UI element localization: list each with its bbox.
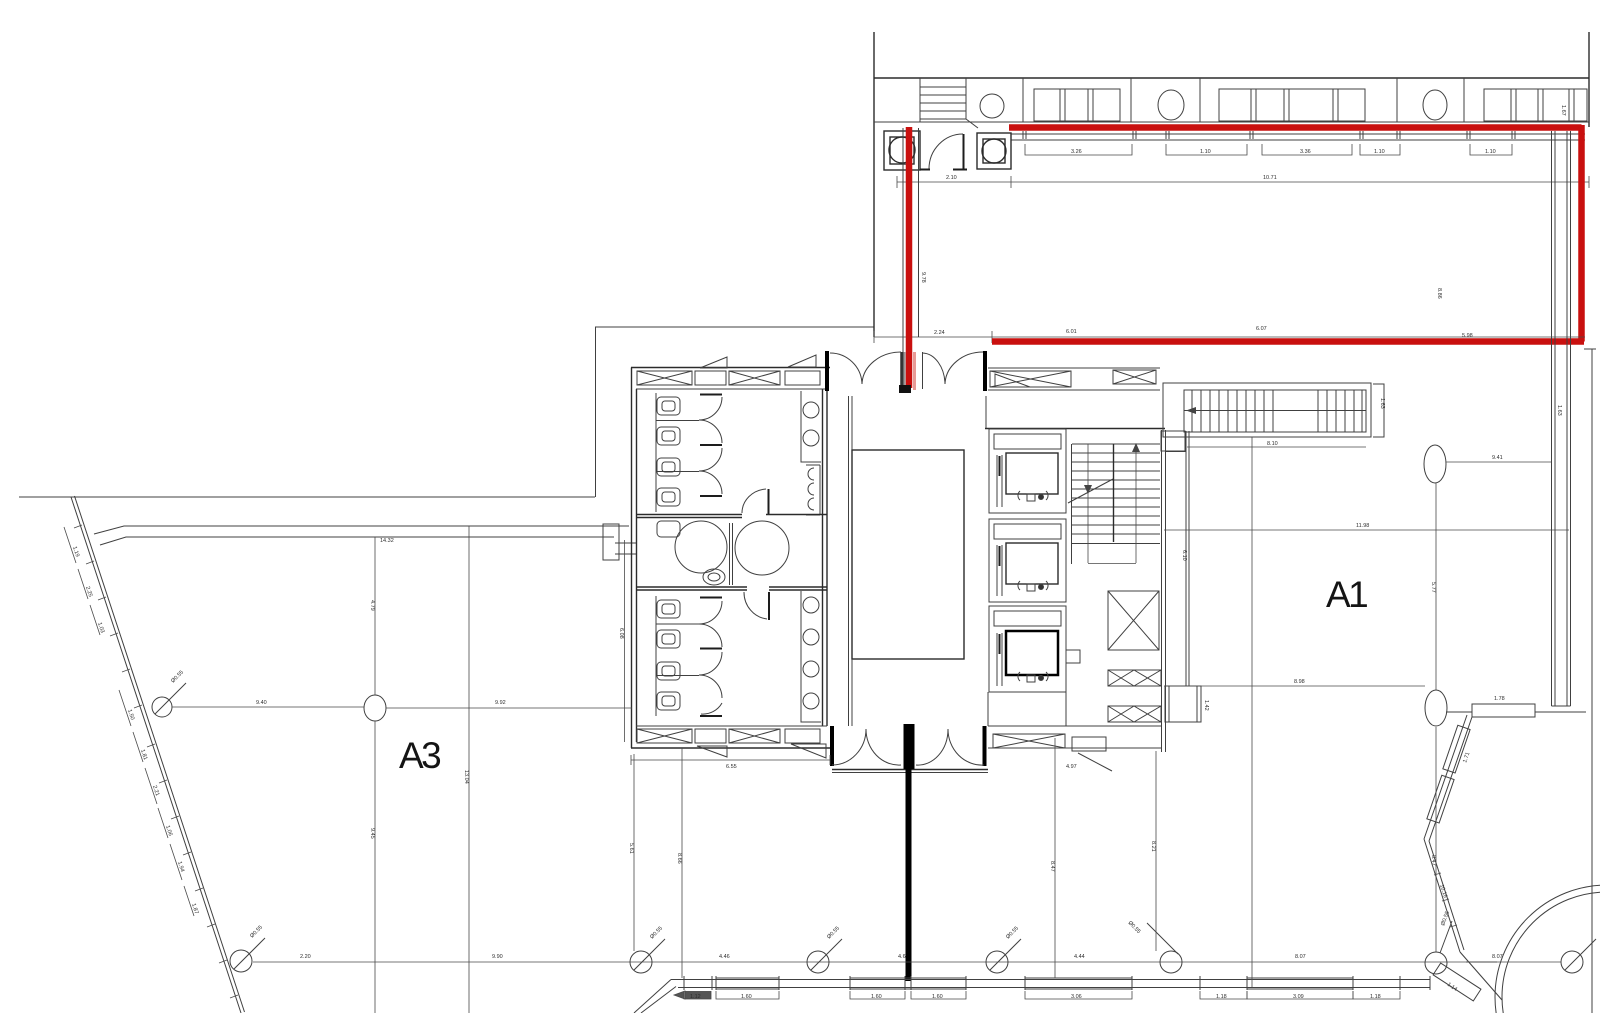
svg-text:3.26: 3.26 (1071, 149, 1082, 155)
svg-text:1.42: 1.42 (1203, 700, 1209, 711)
svg-text:1.10: 1.10 (1485, 149, 1496, 155)
svg-text:3.36: 3.36 (1300, 149, 1311, 155)
svg-text:1.78: 1.78 (1494, 696, 1505, 702)
svg-text:10.71: 10.71 (1263, 175, 1277, 181)
svg-text:1.67: 1.67 (1560, 105, 1566, 116)
svg-text:8.66: 8.66 (676, 853, 682, 864)
svg-text:1.18: 1.18 (1370, 994, 1381, 1000)
svg-text:2.20: 2.20 (300, 954, 311, 960)
svg-text:1.10: 1.10 (1374, 149, 1385, 155)
svg-text:4.44: 4.44 (1074, 954, 1085, 960)
svg-text:14.32: 14.32 (380, 538, 394, 544)
svg-text:9.78: 9.78 (920, 272, 926, 283)
svg-text:9.92: 9.92 (495, 700, 506, 706)
svg-text:6.08: 6.08 (618, 628, 624, 639)
svg-text:13.04: 13.04 (463, 770, 469, 784)
svg-text:6.10: 6.10 (1181, 550, 1187, 561)
svg-text:A3: A3 (399, 735, 440, 776)
svg-text:4.46: 4.46 (719, 954, 730, 960)
svg-text:2.24: 2.24 (934, 330, 945, 336)
svg-text:5.61: 5.61 (628, 843, 634, 854)
svg-text:9.45: 9.45 (369, 828, 375, 839)
svg-text:8.98: 8.98 (1294, 679, 1305, 685)
svg-text:4.97: 4.97 (1066, 764, 1077, 770)
svg-text:8.86: 8.86 (1436, 288, 1442, 299)
svg-text:8.10: 8.10 (1267, 441, 1278, 447)
svg-text:8.47: 8.47 (1049, 861, 1055, 872)
svg-text:1.18: 1.18 (1216, 994, 1227, 1000)
svg-text:9.41: 9.41 (1492, 455, 1503, 461)
svg-text:6.07: 6.07 (1256, 326, 1267, 332)
svg-text:1.60: 1.60 (932, 994, 943, 1000)
svg-text:1.12: 1.12 (690, 994, 701, 1000)
svg-text:1.63: 1.63 (1379, 398, 1385, 409)
svg-text:2.10: 2.10 (946, 175, 957, 181)
svg-text:1.60: 1.60 (871, 994, 882, 1000)
svg-text:1.60: 1.60 (741, 994, 752, 1000)
svg-text:11.98: 11.98 (1356, 523, 1369, 529)
svg-text:3.09: 3.09 (1293, 994, 1304, 1000)
svg-text:4.79: 4.79 (369, 600, 375, 611)
svg-text:4.6: 4.6 (898, 954, 906, 960)
svg-text:3.06: 3.06 (1071, 994, 1082, 1000)
svg-text:5.77: 5.77 (1430, 582, 1436, 593)
svg-text:6.01: 6.01 (1066, 329, 1077, 335)
svg-text:8.21: 8.21 (1150, 841, 1156, 852)
svg-text:6.55: 6.55 (726, 764, 737, 770)
svg-text:A1: A1 (1326, 574, 1367, 615)
svg-text:8.07: 8.07 (1492, 954, 1503, 960)
svg-text:1.63: 1.63 (1556, 405, 1562, 416)
svg-text:1.10: 1.10 (1200, 149, 1211, 155)
svg-text:5.98: 5.98 (1462, 333, 1473, 339)
svg-text:9.40: 9.40 (256, 700, 267, 706)
svg-text:9.90: 9.90 (492, 954, 503, 960)
svg-text:8.07: 8.07 (1295, 954, 1306, 960)
